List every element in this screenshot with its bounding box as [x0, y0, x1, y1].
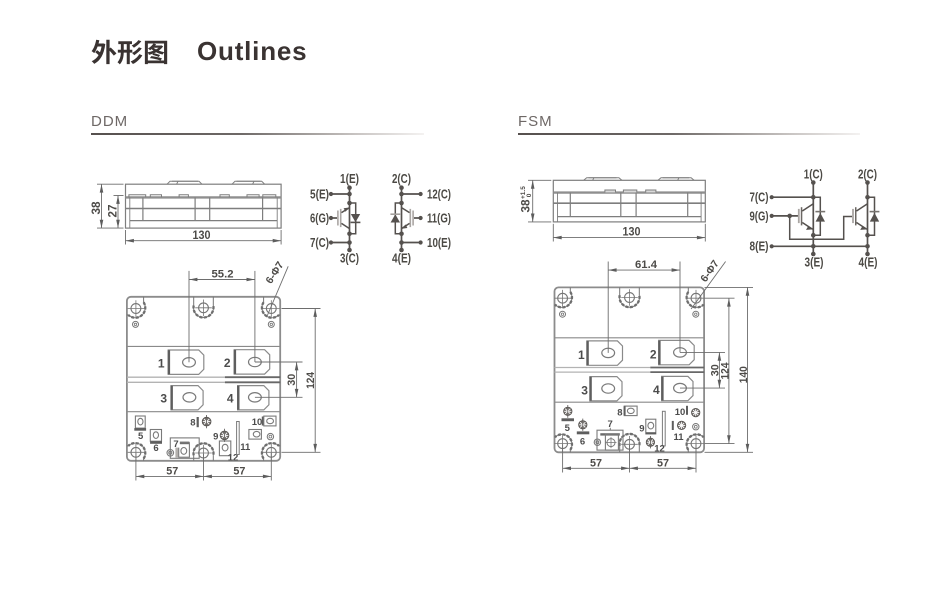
svg-text:4: 4 — [653, 383, 660, 397]
svg-text:3: 3 — [160, 391, 167, 405]
svg-text:57: 57 — [166, 465, 178, 477]
svg-text:1: 1 — [158, 356, 165, 370]
svg-text:2: 2 — [650, 347, 657, 361]
svg-text:2: 2 — [224, 356, 231, 370]
svg-text:11(G): 11(G) — [427, 210, 451, 225]
svg-text:11: 11 — [673, 432, 684, 443]
svg-text:12: 12 — [654, 444, 665, 455]
svg-text:4: 4 — [227, 391, 234, 405]
svg-text:10: 10 — [675, 407, 686, 418]
svg-text:3: 3 — [581, 384, 588, 398]
svg-text:8: 8 — [190, 417, 195, 428]
svg-text:1(E): 1(E) — [340, 171, 359, 186]
svg-text:10: 10 — [252, 417, 263, 428]
svg-text:5: 5 — [138, 431, 144, 442]
svg-text:55.2: 55.2 — [212, 269, 234, 281]
svg-text:130: 130 — [623, 227, 641, 239]
svg-text:2(C): 2(C) — [392, 171, 411, 186]
svg-text:4(E): 4(E) — [392, 250, 411, 265]
svg-text:6: 6 — [153, 443, 158, 454]
svg-text:57: 57 — [657, 457, 669, 469]
svg-text:9: 9 — [639, 424, 644, 435]
svg-text:6: 6 — [580, 436, 585, 447]
svg-text:1(C): 1(C) — [804, 167, 823, 182]
svg-text:38: 38 — [521, 199, 533, 213]
svg-text:140: 140 — [738, 366, 750, 383]
svg-text:30: 30 — [286, 374, 298, 386]
svg-text:10(E): 10(E) — [427, 235, 451, 250]
svg-text:9(G): 9(G) — [750, 208, 769, 223]
svg-text:6-Φ7: 6-Φ7 — [263, 259, 286, 286]
svg-text:7(C): 7(C) — [750, 190, 769, 205]
svg-text:8: 8 — [617, 408, 622, 419]
svg-text:7(C): 7(C) — [310, 235, 329, 250]
svg-text:3(E): 3(E) — [805, 254, 824, 269]
svg-text:0: 0 — [526, 193, 533, 199]
svg-text:38: 38 — [91, 201, 103, 215]
svg-text:27: 27 — [108, 205, 120, 218]
svg-text:8(E): 8(E) — [750, 239, 769, 254]
svg-text:11: 11 — [240, 442, 251, 453]
svg-text:7: 7 — [173, 439, 178, 450]
svg-text:5(E): 5(E) — [310, 186, 329, 201]
svg-text:57: 57 — [590, 457, 602, 469]
svg-text:5: 5 — [565, 423, 571, 434]
svg-text:9: 9 — [213, 431, 218, 442]
svg-text:6(G): 6(G) — [310, 210, 329, 225]
svg-text:1: 1 — [578, 348, 585, 362]
svg-text:2(C): 2(C) — [858, 167, 877, 182]
svg-text:124: 124 — [719, 362, 731, 380]
svg-text:61.4: 61.4 — [635, 259, 658, 271]
svg-text:12(C): 12(C) — [427, 186, 451, 201]
svg-text:130: 130 — [193, 230, 211, 242]
svg-text:124: 124 — [305, 371, 317, 389]
svg-text:3(C): 3(C) — [340, 250, 359, 265]
svg-text:4(E): 4(E) — [859, 254, 878, 269]
svg-text:57: 57 — [233, 465, 245, 477]
